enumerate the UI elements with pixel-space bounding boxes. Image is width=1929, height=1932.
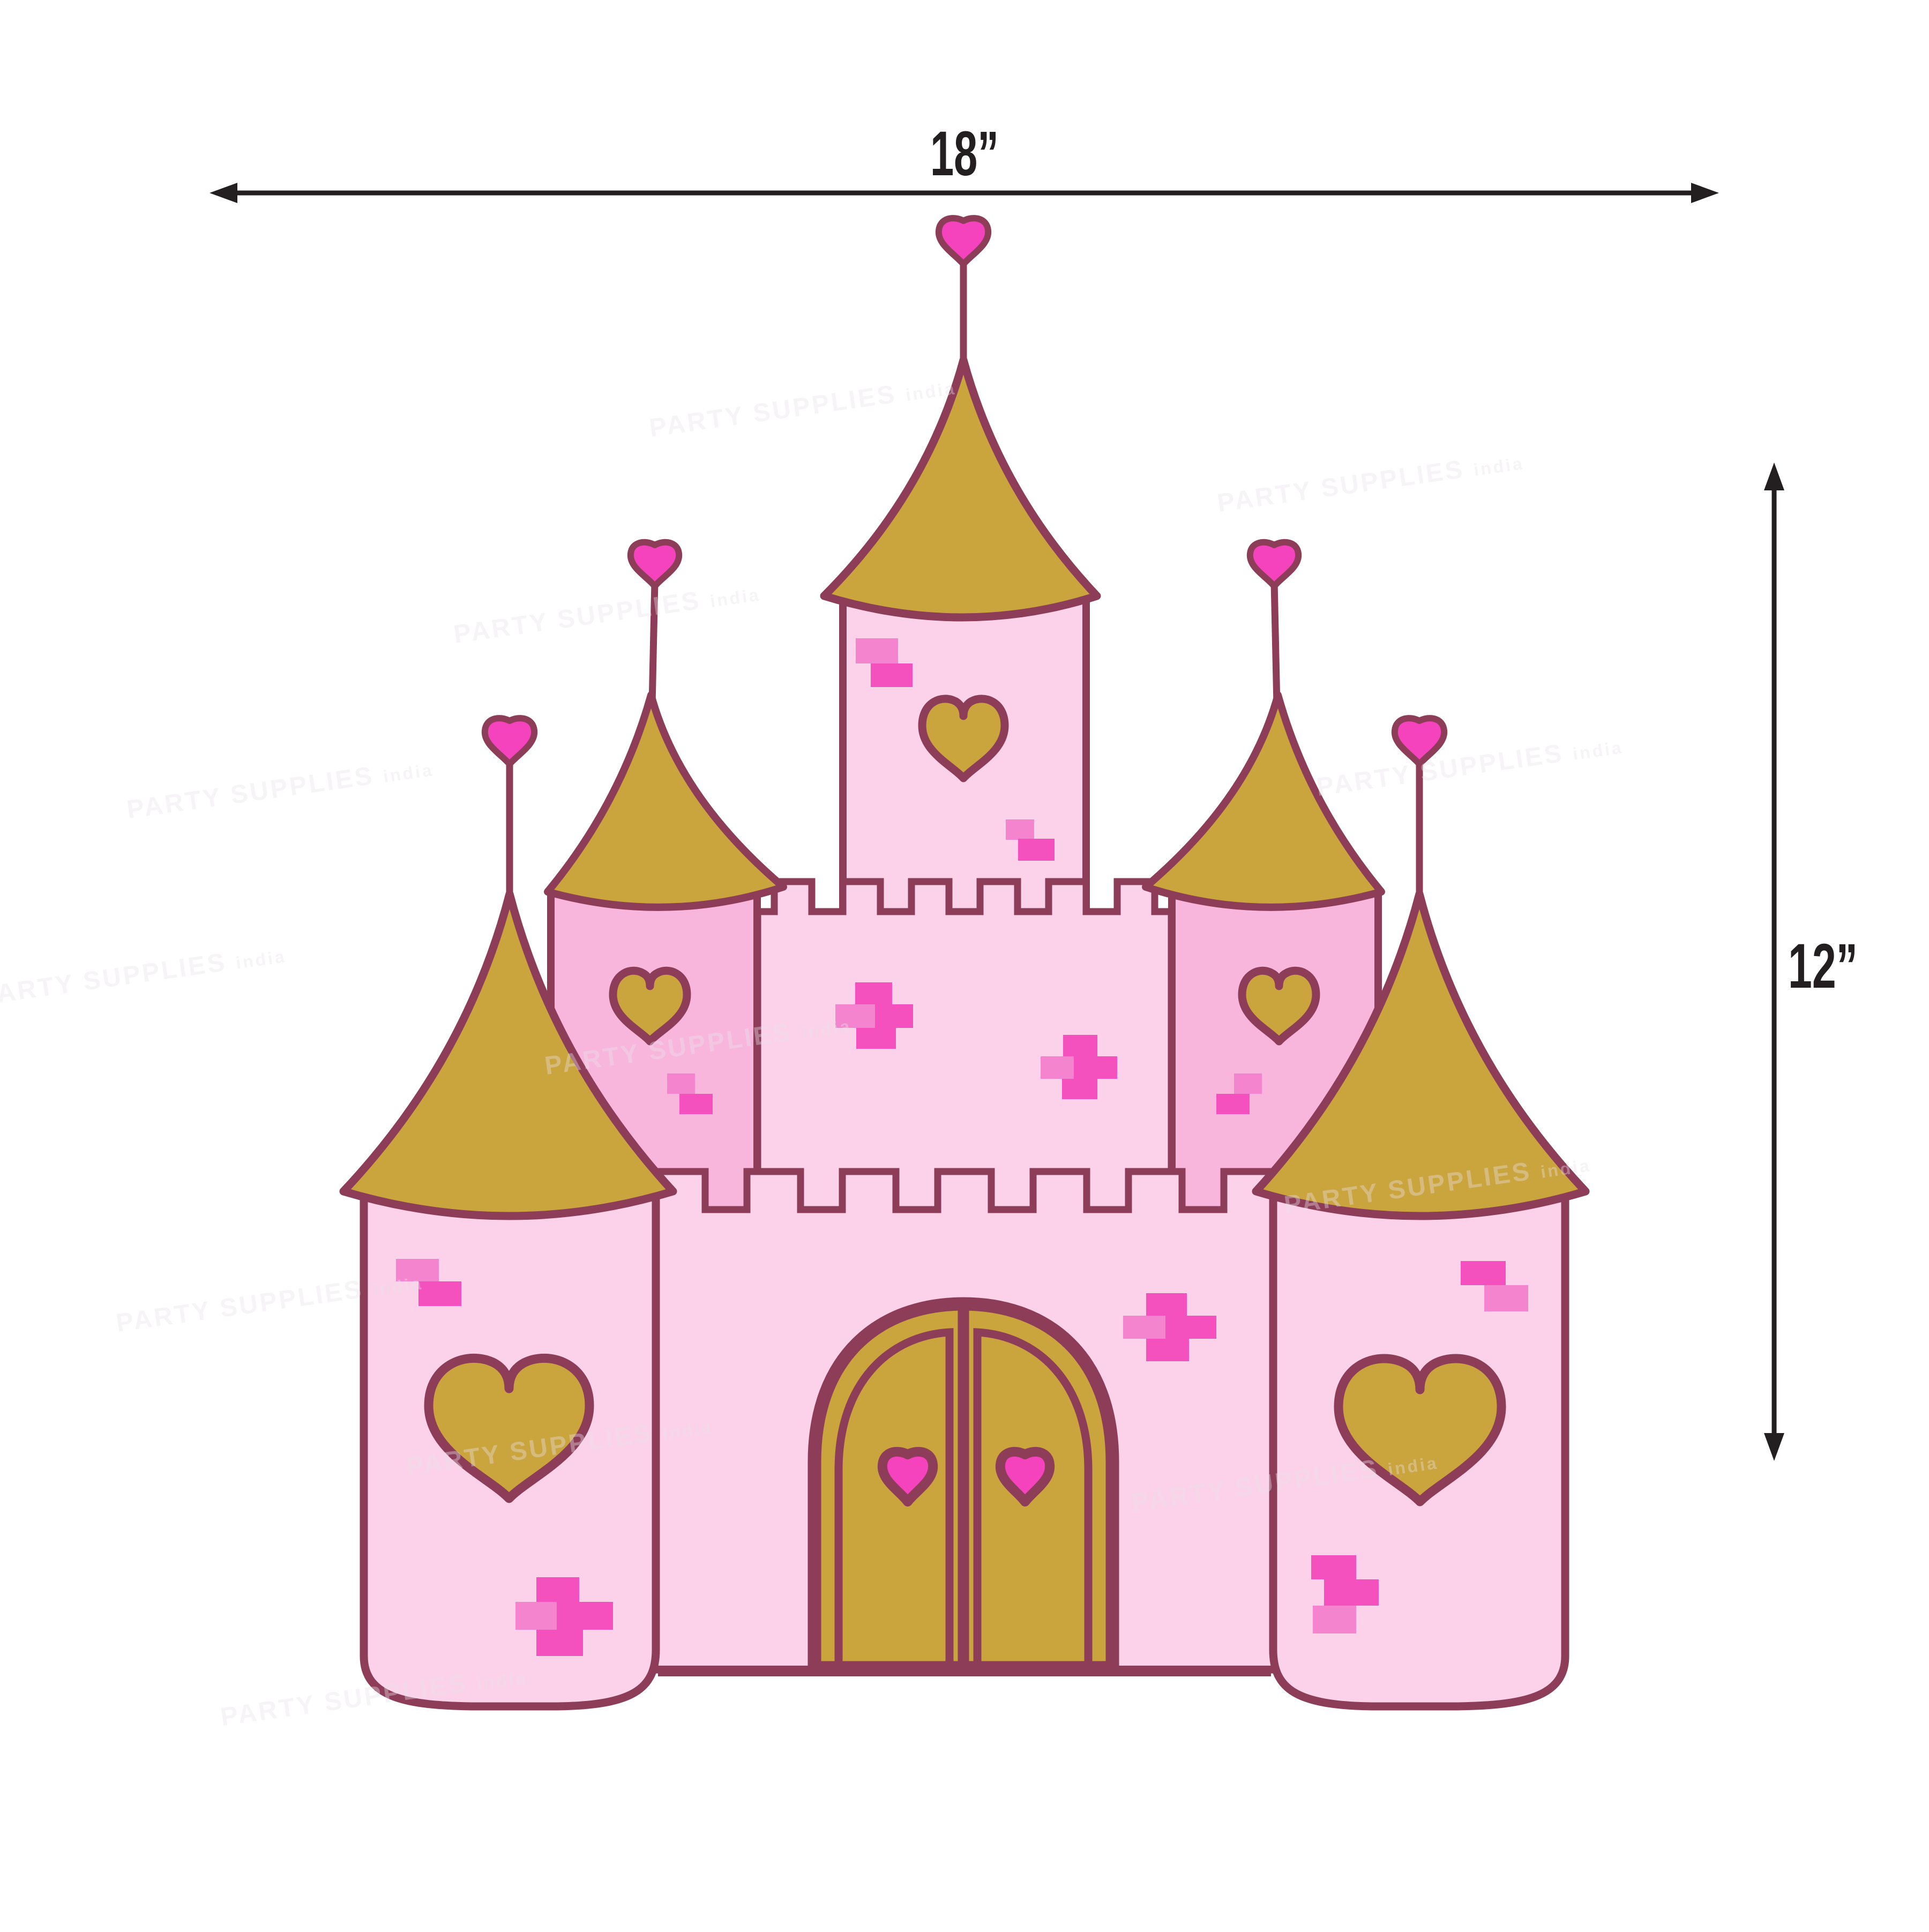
svg-text:12”: 12” xyxy=(1788,931,1858,1002)
svg-text:18”: 18” xyxy=(930,118,999,189)
